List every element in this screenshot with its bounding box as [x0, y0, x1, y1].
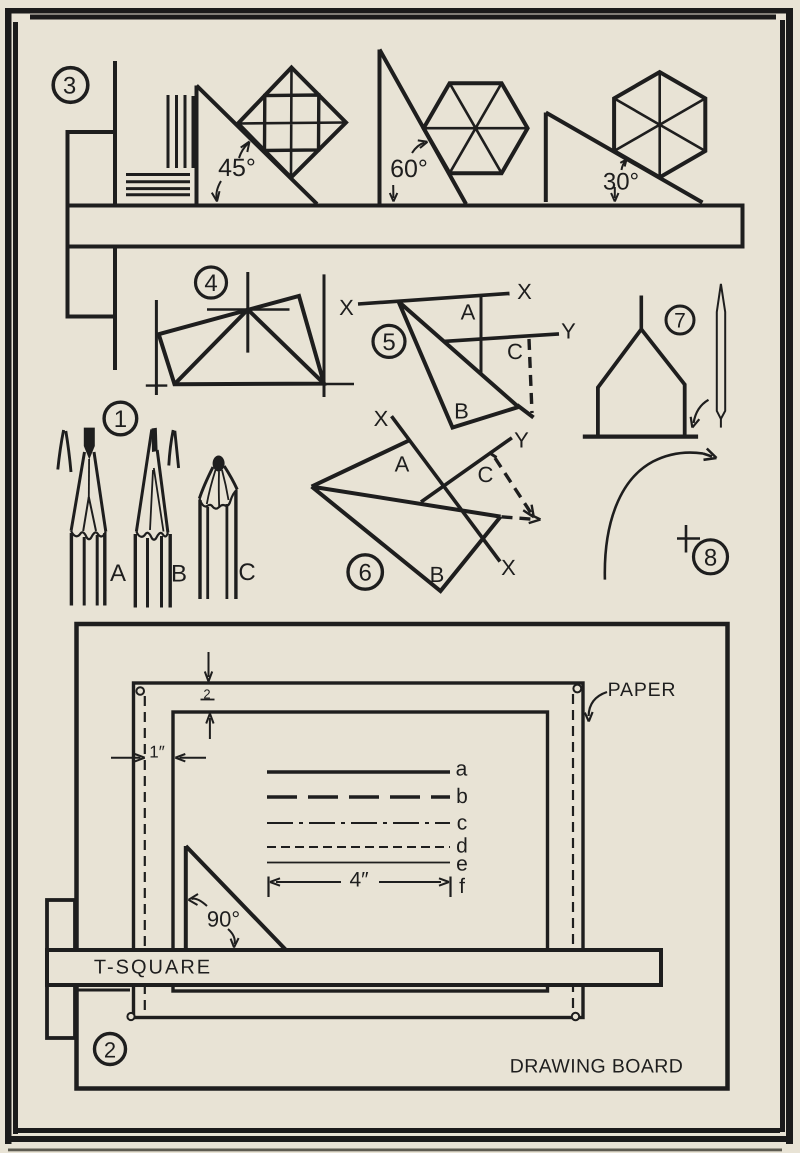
svg-text:7: 7	[674, 310, 686, 333]
svg-text:3: 3	[63, 73, 76, 100]
svg-text:4: 4	[204, 270, 217, 297]
svg-text:A: A	[461, 300, 476, 325]
svg-text:Y: Y	[514, 428, 529, 453]
svg-text:8: 8	[704, 544, 717, 571]
svg-text:X: X	[374, 406, 389, 431]
svg-text:e: e	[456, 853, 468, 876]
svg-text:X: X	[339, 295, 354, 320]
svg-text:f: f	[459, 875, 465, 898]
svg-text:1″: 1″	[149, 743, 164, 762]
svg-text:a: a	[456, 758, 468, 781]
svg-text:C: C	[478, 462, 494, 487]
svg-text:B: B	[454, 399, 469, 424]
svg-text:30°: 30°	[603, 169, 639, 196]
svg-text:90°: 90°	[207, 907, 240, 932]
svg-text:Y: Y	[561, 319, 576, 344]
svg-text:5: 5	[382, 329, 395, 356]
svg-text:2: 2	[104, 1038, 116, 1063]
svg-text:X: X	[517, 279, 532, 304]
svg-text:4″: 4″	[349, 869, 369, 892]
svg-text:c: c	[457, 812, 468, 835]
svg-text:A: A	[395, 452, 410, 477]
svg-text:T-SQUARE: T-SQUARE	[94, 957, 212, 979]
svg-text:b: b	[456, 785, 468, 808]
svg-text:B: B	[171, 561, 187, 588]
svg-text:45°: 45°	[218, 154, 256, 182]
svg-text:B: B	[430, 562, 445, 587]
svg-text:C: C	[238, 559, 255, 586]
svg-text:60°: 60°	[390, 155, 428, 183]
svg-text:PAPER: PAPER	[608, 679, 677, 701]
svg-text:1: 1	[114, 406, 127, 433]
svg-text:X: X	[501, 555, 516, 580]
svg-text:C: C	[507, 339, 523, 364]
svg-text:A: A	[110, 560, 126, 587]
svg-text:DRAWING BOARD: DRAWING BOARD	[510, 1056, 683, 1078]
svg-text:6: 6	[359, 560, 372, 587]
